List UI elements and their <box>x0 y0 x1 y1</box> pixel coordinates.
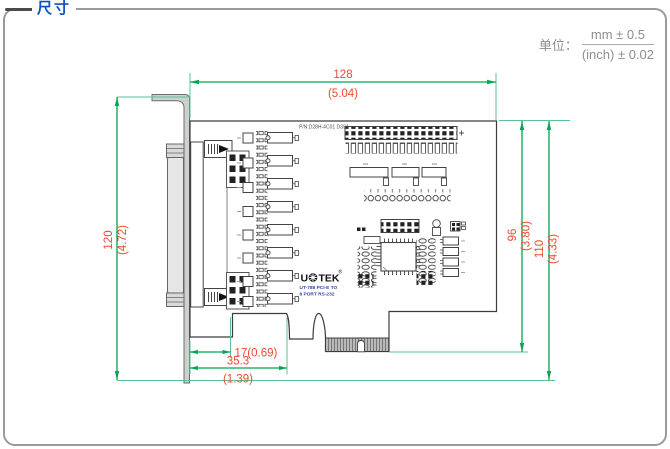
jackscrew-top <box>167 144 185 158</box>
board-part-number: P/N:D28H-4C01 D3S1 <box>299 125 349 131</box>
db-connector-shell <box>168 158 184 294</box>
capacitor-column <box>256 130 268 307</box>
jackscrew-bottom <box>167 293 185 307</box>
uotek-logo-o-icon <box>309 273 318 282</box>
dimension-panel: 尺寸 单位： mm ± 0.5 (inch) ± 0.02 <box>0 0 670 449</box>
logo-tek: TEK <box>319 273 340 285</box>
dim-overall-height-inch: (4.33) <box>548 234 560 264</box>
dim-board-height-inch: (3.80) <box>521 221 533 251</box>
mounting-bracket <box>152 95 190 384</box>
logo-reg: ® <box>339 269 343 276</box>
logo-u: U <box>301 273 309 285</box>
capacitor-row <box>364 188 451 205</box>
model-line2: 8 PORT RS-232 <box>300 292 335 298</box>
qfp-chip <box>377 239 421 276</box>
pcie-key-notch <box>358 341 365 352</box>
center-pin-header <box>381 220 419 233</box>
pcie-edge-connector <box>326 338 390 352</box>
dim-overall-height-mm: 110 <box>534 240 546 258</box>
dim-height-inch: (4.72) <box>117 225 129 255</box>
model-line1: UT-788 PCI-E TO <box>300 285 338 291</box>
dim-connector-offset-inch: (1.39) <box>223 374 253 386</box>
resistor-network-row <box>346 143 458 154</box>
dim-connector-offset-mm: 35.3 <box>227 356 249 368</box>
dim-height-mm: 120 <box>103 230 115 249</box>
dim-width-inch: (5.04) <box>328 88 358 100</box>
dimension-drawing: P/N:D28H-4C01 D3S1 U TEK ® UT-788 PCI-E … <box>0 0 670 449</box>
dim-board-height-mm: 96 <box>507 229 519 242</box>
dim-width-mm: 128 <box>333 69 352 81</box>
jumper-header-block <box>345 127 464 140</box>
